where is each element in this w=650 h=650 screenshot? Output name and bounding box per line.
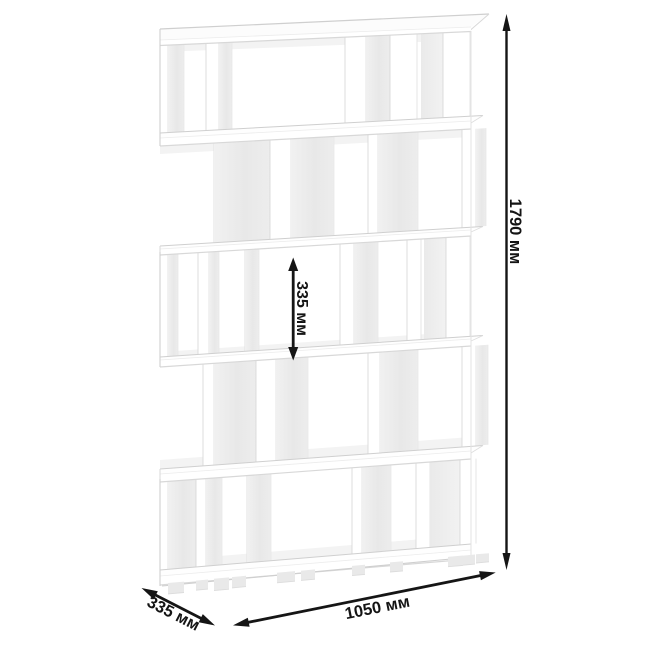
svg-text:335 мм: 335 мм (293, 281, 310, 336)
svg-text:1790 мм: 1790 мм (506, 199, 524, 265)
